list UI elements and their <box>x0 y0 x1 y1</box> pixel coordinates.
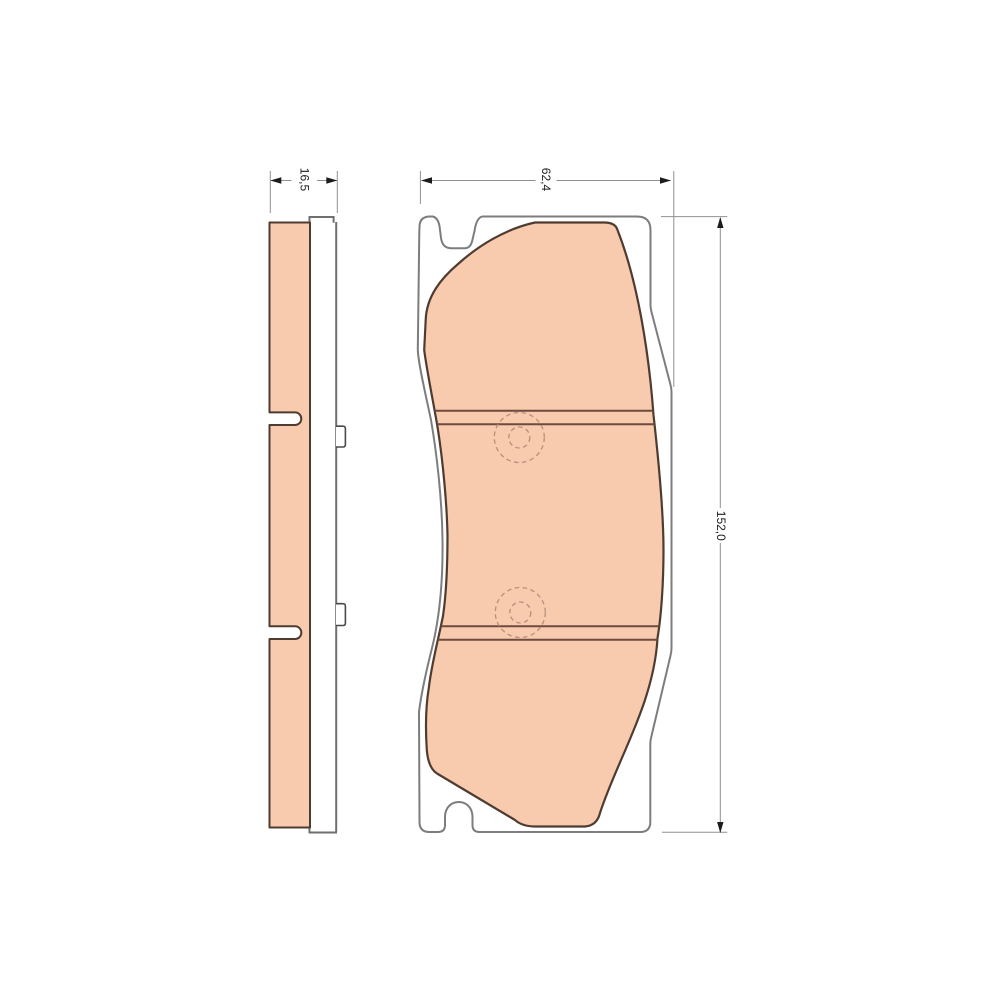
svg-text:62,4: 62,4 <box>539 168 553 192</box>
svg-text:16,5: 16,5 <box>297 168 311 192</box>
svg-text:152,0: 152,0 <box>714 511 728 541</box>
